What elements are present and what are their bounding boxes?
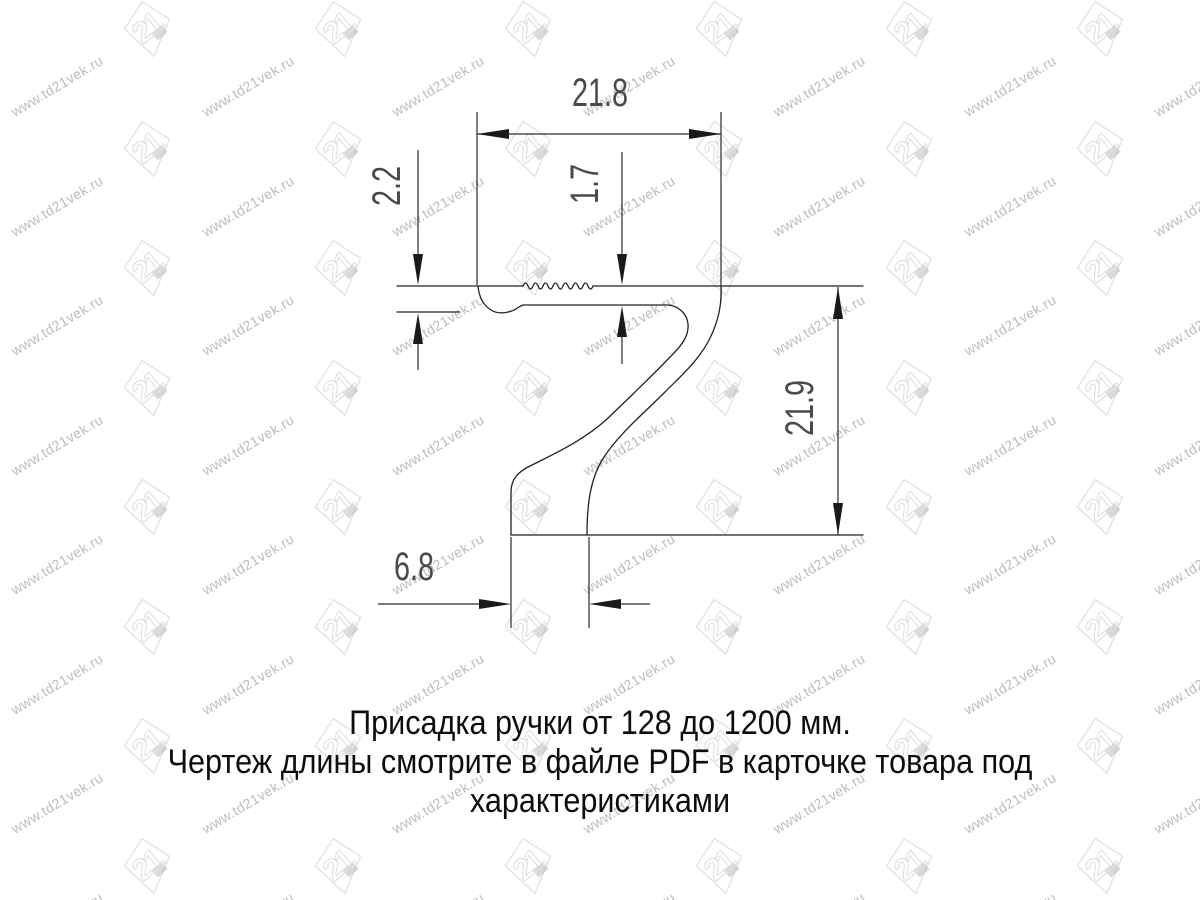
profile-knurl-wave <box>523 283 593 289</box>
arrow-21-9-down <box>833 503 843 535</box>
arrow-2-2-up <box>413 313 423 344</box>
arrow-21-9-up <box>833 287 843 319</box>
profile-outer-curve <box>511 305 688 535</box>
profile-inner-curve <box>587 286 721 535</box>
caption-line-1: Присадка ручки от 128 до 1200 мм. <box>60 704 1140 743</box>
dim-label-21-9: 21.9 <box>777 380 822 436</box>
caption-line-3: характеристиками <box>60 782 1140 821</box>
dim-label-2-2: 2.2 <box>364 166 409 206</box>
arrow-1-7-down <box>617 254 627 285</box>
arrow-6-8-left <box>589 599 621 609</box>
arrow-1-7-up <box>617 306 627 337</box>
caption-line-2: Чертеж длины смотрите в файле PDF в карт… <box>60 743 1140 782</box>
arrow-21-8-right <box>689 129 721 139</box>
caption-block: Присадка ручки от 128 до 1200 мм. Чертеж… <box>0 704 1200 821</box>
arrow-21-8-left <box>477 129 509 139</box>
profile-notch-curve <box>478 286 523 313</box>
dimension-labels: 21.8 2.2 1.7 21.9 6.8 <box>364 70 822 589</box>
dim-label-1-7: 1.7 <box>562 164 607 204</box>
dimension-lines <box>378 112 838 628</box>
arrow-6-8-right <box>479 599 511 609</box>
dim-label-21-8: 21.8 <box>572 70 628 115</box>
drawing-canvas: 21 www.td21vek.ru 21 www.td21vek.ru 21 w… <box>0 0 1200 900</box>
arrow-2-2-down <box>413 254 423 285</box>
dim-label-6-8: 6.8 <box>394 544 434 589</box>
